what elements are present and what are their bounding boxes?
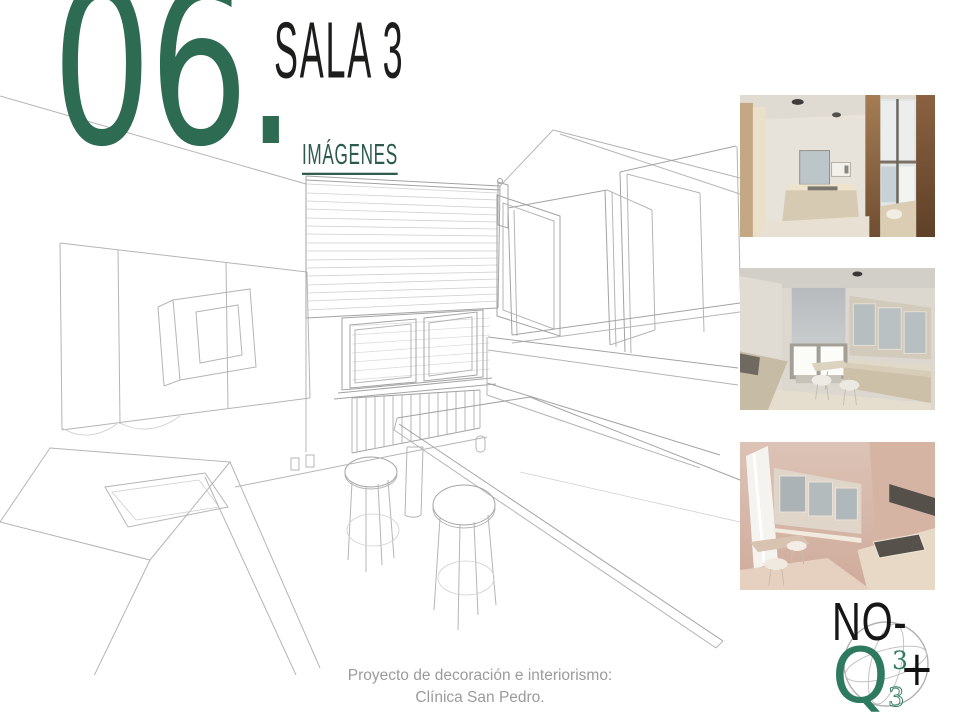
render-thumbnail-2: [740, 268, 935, 410]
render-1-image: [740, 95, 935, 237]
stool-1-sketch: [345, 457, 399, 572]
sink-counter-sketch: [0, 448, 320, 675]
footer-line-1: Proyecto de decoración e interiorismo:: [0, 665, 960, 687]
stool-2-sketch: [433, 485, 496, 630]
open-window-sash-sketch: [497, 195, 560, 336]
render-thumbnail-3: [740, 442, 935, 590]
section-number: 06.: [52, 0, 293, 178]
microwave-sketch: [158, 289, 256, 386]
footer-caption: Proyecto de decoración e interiorismo: C…: [0, 665, 960, 708]
radiator-sketch: [352, 390, 480, 453]
page-title: SALA 3: [274, 12, 404, 91]
right-wall-niches-sketch: [508, 146, 741, 353]
render-3-image: [740, 442, 935, 590]
slide-subtitle: IMÁGENES: [302, 138, 398, 175]
wall-base-outlets-sketch: [235, 437, 487, 487]
roller-blind-sketch: [306, 176, 508, 318]
render-2-image: [740, 268, 935, 410]
left-cabinet-sketch: [60, 243, 310, 435]
render-thumbnail-1: [740, 95, 935, 237]
window-sketch: [334, 310, 496, 399]
footer-line-2: Clínica San Pedro.: [0, 687, 960, 709]
slide-page: 06. SALA 3 IMÁGENES: [0, 0, 960, 720]
